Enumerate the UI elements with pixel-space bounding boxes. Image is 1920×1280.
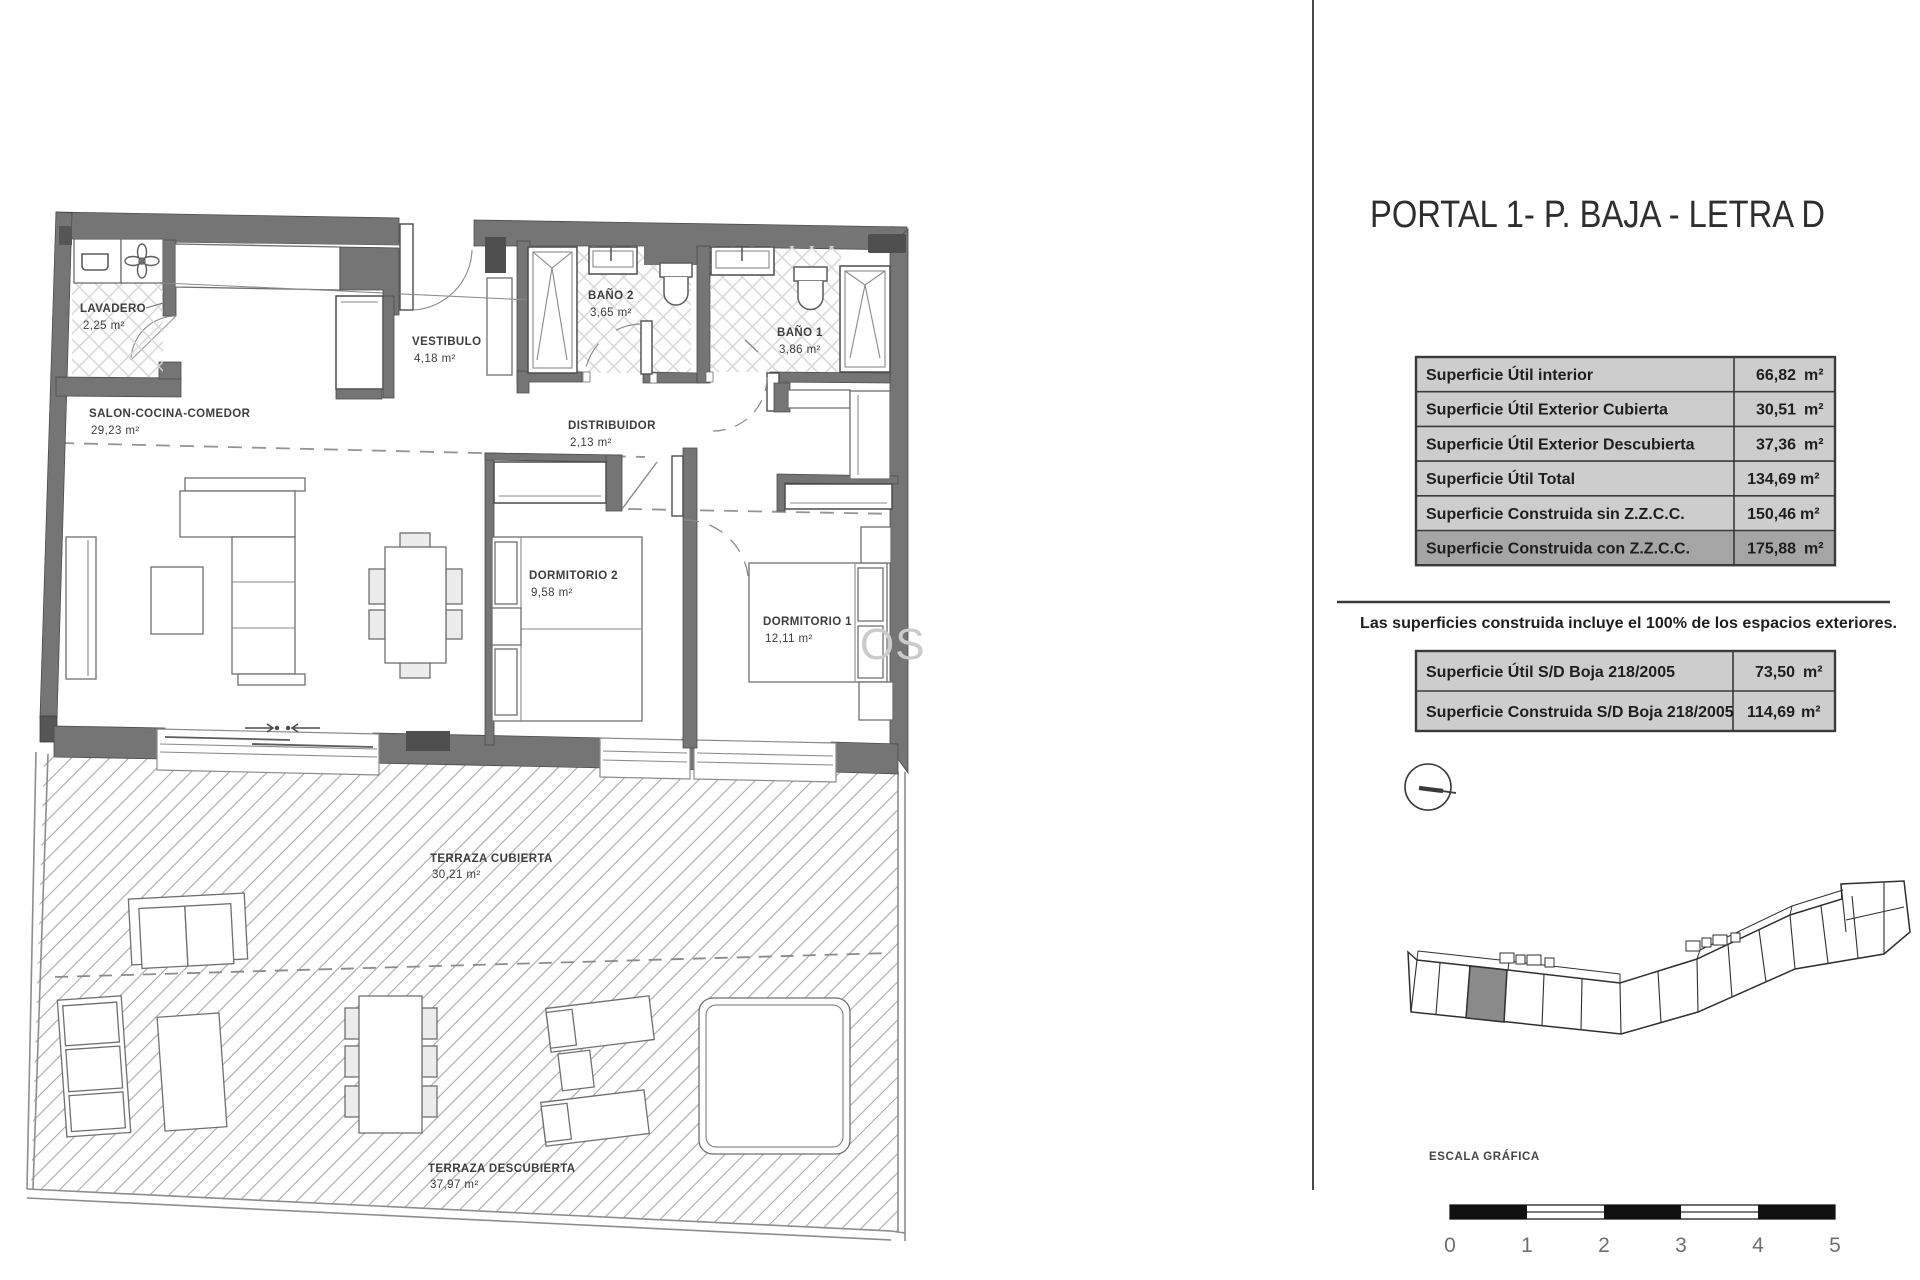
svg-text:m²: m² <box>1800 506 1820 523</box>
svg-text:Superficie Útil Total: Superficie Útil Total <box>1426 469 1575 488</box>
svg-text:m²: m² <box>1801 704 1821 721</box>
svg-text:3,65 m²: 3,65 m² <box>590 307 632 319</box>
svg-text:2: 2 <box>1598 1234 1610 1257</box>
svg-text:Superficie Construida con Z.Z.: Superficie Construida con Z.Z.C.C. <box>1426 541 1690 558</box>
svg-text:2,13 m²: 2,13 m² <box>570 437 612 449</box>
svg-text:73,50: 73,50 <box>1755 664 1795 681</box>
svg-text:Superficie Construida S/D Boja: Superficie Construida S/D Boja 218/2005 <box>1426 704 1734 721</box>
svg-text:Superficie Útil interior: Superficie Útil interior <box>1426 365 1593 384</box>
svg-text:30,21 m²: 30,21 m² <box>432 869 481 881</box>
svg-text:175,88: 175,88 <box>1747 541 1796 558</box>
svg-text:Superficie Útil Exterior Descu: Superficie Útil Exterior Descubierta <box>1426 434 1695 453</box>
svg-text:DISTRIBUIDOR: DISTRIBUIDOR <box>568 420 656 432</box>
svg-text:Superficie Útil S/D Boja 218/2: Superficie Útil S/D Boja 218/2005 <box>1426 662 1675 681</box>
svg-text:12,11 m²: 12,11 m² <box>765 633 813 645</box>
svg-text:TERRAZA CUBIERTA: TERRAZA CUBIERTA <box>430 853 553 865</box>
svg-text:2,25 m²: 2,25 m² <box>83 320 125 332</box>
svg-text:VESTIBULO: VESTIBULO <box>412 336 481 348</box>
svg-text:LAVADERO: LAVADERO <box>80 303 146 315</box>
svg-text:OS: OS <box>860 620 926 669</box>
svg-text:4,18 m²: 4,18 m² <box>414 353 456 365</box>
svg-text:Superficie Construida sin Z.Z.: Superficie Construida sin Z.Z.C.C. <box>1426 506 1685 523</box>
svg-text:37,36: 37,36 <box>1756 436 1796 453</box>
svg-text:30,51: 30,51 <box>1756 402 1796 419</box>
svg-text:SALON-COCINA-COMEDOR: SALON-COCINA-COMEDOR <box>89 408 251 420</box>
svg-text:1: 1 <box>1521 1234 1533 1257</box>
svg-text:3: 3 <box>1675 1234 1687 1257</box>
svg-text:Superficie Útil Exterior Cubie: Superficie Útil Exterior Cubierta <box>1426 400 1668 419</box>
svg-text:37,97 m²: 37,97 m² <box>430 1179 479 1191</box>
svg-text:29,23 m²: 29,23 m² <box>91 425 140 437</box>
svg-text:m²: m² <box>1804 541 1824 558</box>
svg-text:m²: m² <box>1803 664 1823 681</box>
svg-text:114,69: 114,69 <box>1747 704 1795 721</box>
svg-text:9,58 m²: 9,58 m² <box>531 587 573 599</box>
svg-text:PORTAL 1- P. BAJA - LETRA D: PORTAL 1- P. BAJA - LETRA D <box>1370 194 1825 236</box>
svg-text:m²: m² <box>1804 436 1824 453</box>
svg-text:TERRAZA DESCUBIERTA: TERRAZA DESCUBIERTA <box>428 1163 576 1175</box>
svg-text:5: 5 <box>1829 1234 1841 1257</box>
svg-text:134,69: 134,69 <box>1747 471 1796 488</box>
svg-text:4: 4 <box>1752 1234 1764 1257</box>
svg-text:DORMITORIO 2: DORMITORIO 2 <box>529 570 618 582</box>
svg-text:m²: m² <box>1800 471 1820 488</box>
svg-text:150,46: 150,46 <box>1747 506 1796 523</box>
svg-text:DORMITORIO 1: DORMITORIO 1 <box>763 616 852 628</box>
svg-text:m²: m² <box>1804 402 1824 419</box>
svg-text:3,86 m²: 3,86 m² <box>779 344 821 356</box>
svg-text:ESCALA GRÁFICA: ESCALA GRÁFICA <box>1429 1150 1540 1163</box>
svg-text:BAÑO 1: BAÑO 1 <box>777 326 823 339</box>
svg-text:m²: m² <box>1804 367 1824 384</box>
svg-text:BAÑO 2: BAÑO 2 <box>588 289 634 302</box>
svg-text:Las superficies construida inc: Las superficies construida incluye el 10… <box>1360 615 1897 632</box>
svg-text:66,82: 66,82 <box>1756 367 1796 384</box>
svg-text:0: 0 <box>1444 1234 1456 1257</box>
